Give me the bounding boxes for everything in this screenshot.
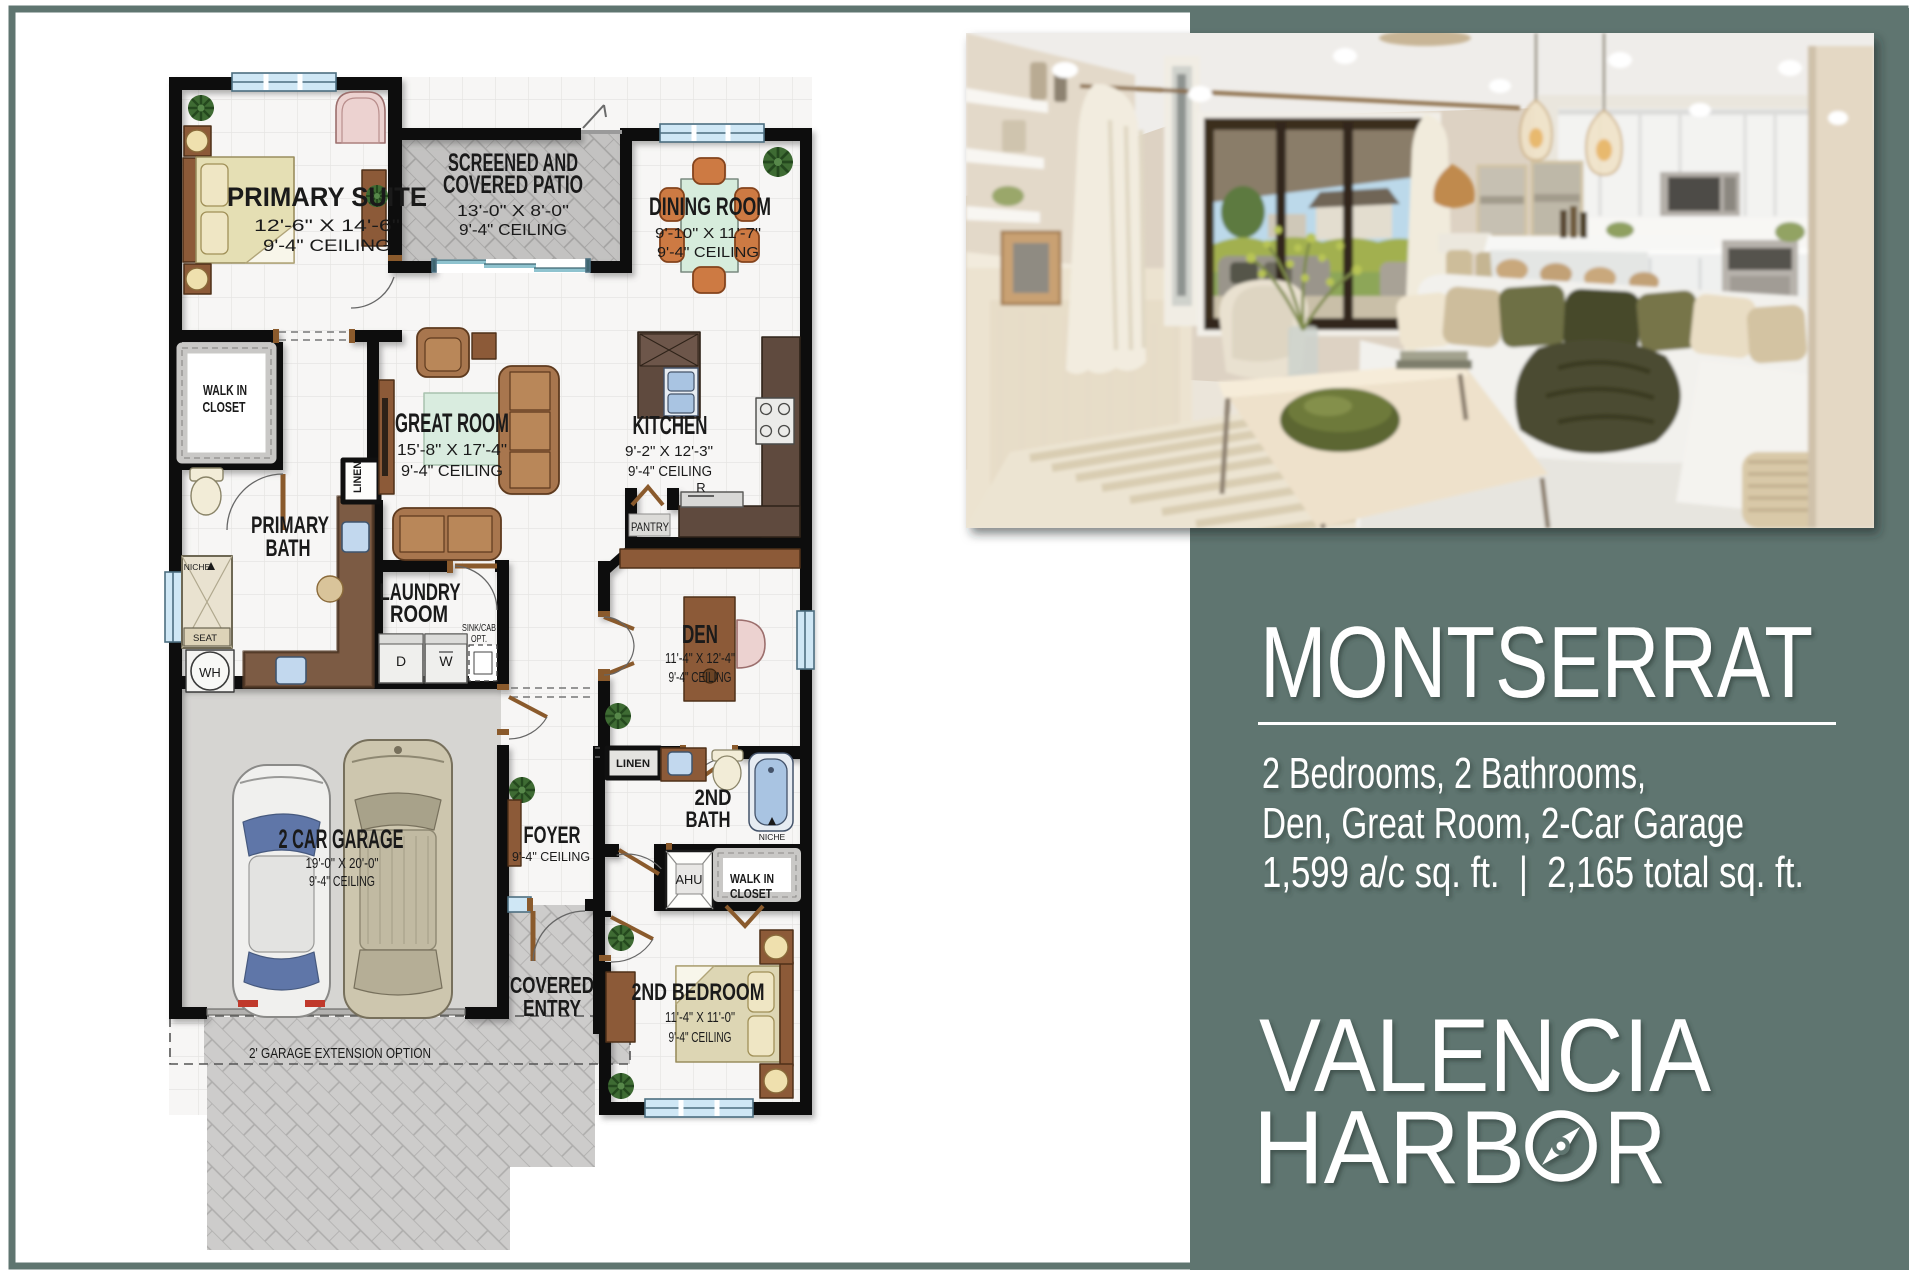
svg-text:SEAT: SEAT (193, 633, 217, 644)
svg-text:W: W (439, 653, 453, 669)
svg-text:KITCHEN: KITCHEN (633, 410, 708, 440)
svg-text:12'-6" X 14'-6": 12'-6" X 14'-6" (254, 216, 400, 235)
svg-text:ROOM: ROOM (390, 601, 448, 628)
svg-text:11'-4" X 12'-4": 11'-4" X 12'-4" (665, 650, 735, 667)
svg-text:BATH: BATH (266, 535, 311, 562)
svg-text:15'-8" X 17'-4": 15'-8" X 17'-4" (397, 442, 507, 459)
svg-text:CLOSET: CLOSET (730, 886, 772, 901)
svg-text:D: D (396, 653, 406, 669)
svg-text:NICHE: NICHE (759, 832, 786, 842)
svg-text:LINEN: LINEN (616, 758, 650, 770)
svg-text:WH: WH (199, 665, 221, 680)
svg-text:CLOSET: CLOSET (203, 399, 246, 416)
svg-text:Den, Great Room, 2-Car Garage: Den, Great Room, 2-Car Garage (1262, 799, 1744, 848)
svg-text:PRIMARY SUITE: PRIMARY SUITE (227, 182, 427, 212)
svg-text:9'-4" CEILING: 9'-4" CEILING (263, 236, 391, 255)
svg-text:11'-4" X 11'-0": 11'-4" X 11'-0" (665, 1009, 735, 1026)
svg-text:2' GARAGE EXTENSION OPTION: 2' GARAGE EXTENSION OPTION (249, 1045, 431, 1062)
svg-text:NICHE: NICHE (184, 562, 211, 572)
svg-text:9'-4" CEILING: 9'-4" CEILING (309, 873, 375, 890)
svg-text:9'-4" CEILING: 9'-4" CEILING (459, 222, 567, 239)
svg-text:WALK IN: WALK IN (203, 382, 247, 399)
svg-text:13'-0" X 8'-0": 13'-0" X 8'-0" (457, 203, 569, 220)
svg-text:R: R (1604, 1090, 1666, 1206)
svg-text:19'-0" X 20'-0": 19'-0" X 20'-0" (306, 855, 379, 872)
svg-text:R: R (696, 480, 705, 495)
svg-text:HARB: HARB (1253, 1090, 1525, 1206)
svg-text:WALK IN: WALK IN (730, 871, 774, 886)
svg-text:ENTRY: ENTRY (523, 995, 581, 1021)
svg-text:DINING ROOM: DINING ROOM (649, 193, 771, 221)
svg-text:PANTRY: PANTRY (631, 520, 669, 534)
svg-text:DEN: DEN (682, 619, 718, 649)
svg-text:9'-4" CEILING: 9'-4" CEILING (669, 669, 732, 686)
svg-text:9'-4" CEILING: 9'-4" CEILING (669, 1029, 732, 1046)
svg-text:9'-10" X 11'-7": 9'-10" X 11'-7" (655, 225, 761, 242)
svg-text:9'-4" CEILING: 9'-4" CEILING (512, 849, 590, 864)
svg-text:2 Bedrooms, 2 Bathrooms,: 2 Bedrooms, 2 Bathrooms, (1262, 749, 1646, 798)
svg-text:2 CAR GARAGE: 2 CAR GARAGE (279, 824, 404, 854)
svg-text:9'-4" CEILING: 9'-4" CEILING (401, 463, 503, 480)
svg-text:9'-2" X 12'-3": 9'-2" X 12'-3" (625, 443, 713, 460)
svg-text:2ND BEDROOM: 2ND BEDROOM (632, 979, 765, 1006)
svg-text:LINEN: LINEN (352, 461, 364, 493)
svg-text:OPT.: OPT. (471, 634, 487, 645)
svg-text:MONTSERRAT: MONTSERRAT (1260, 607, 1813, 719)
svg-text:1,599 a/c sq. ft. | 2,165 to: 1,599 a/c sq. ft. | 2,165 total sq. ft. (1262, 848, 1804, 897)
svg-text:BATH: BATH (686, 807, 731, 832)
svg-text:9'-4" CEILING: 9'-4" CEILING (628, 463, 712, 480)
svg-text:SINK/CAB: SINK/CAB (462, 623, 496, 634)
svg-text:FOYER: FOYER (524, 822, 581, 849)
svg-text:GREAT ROOM: GREAT ROOM (395, 408, 509, 438)
svg-text:AHU: AHU (676, 872, 703, 887)
svg-text:COVERED PATIO: COVERED PATIO (443, 171, 583, 199)
svg-text:9'-4" CEILING: 9'-4" CEILING (657, 244, 759, 261)
